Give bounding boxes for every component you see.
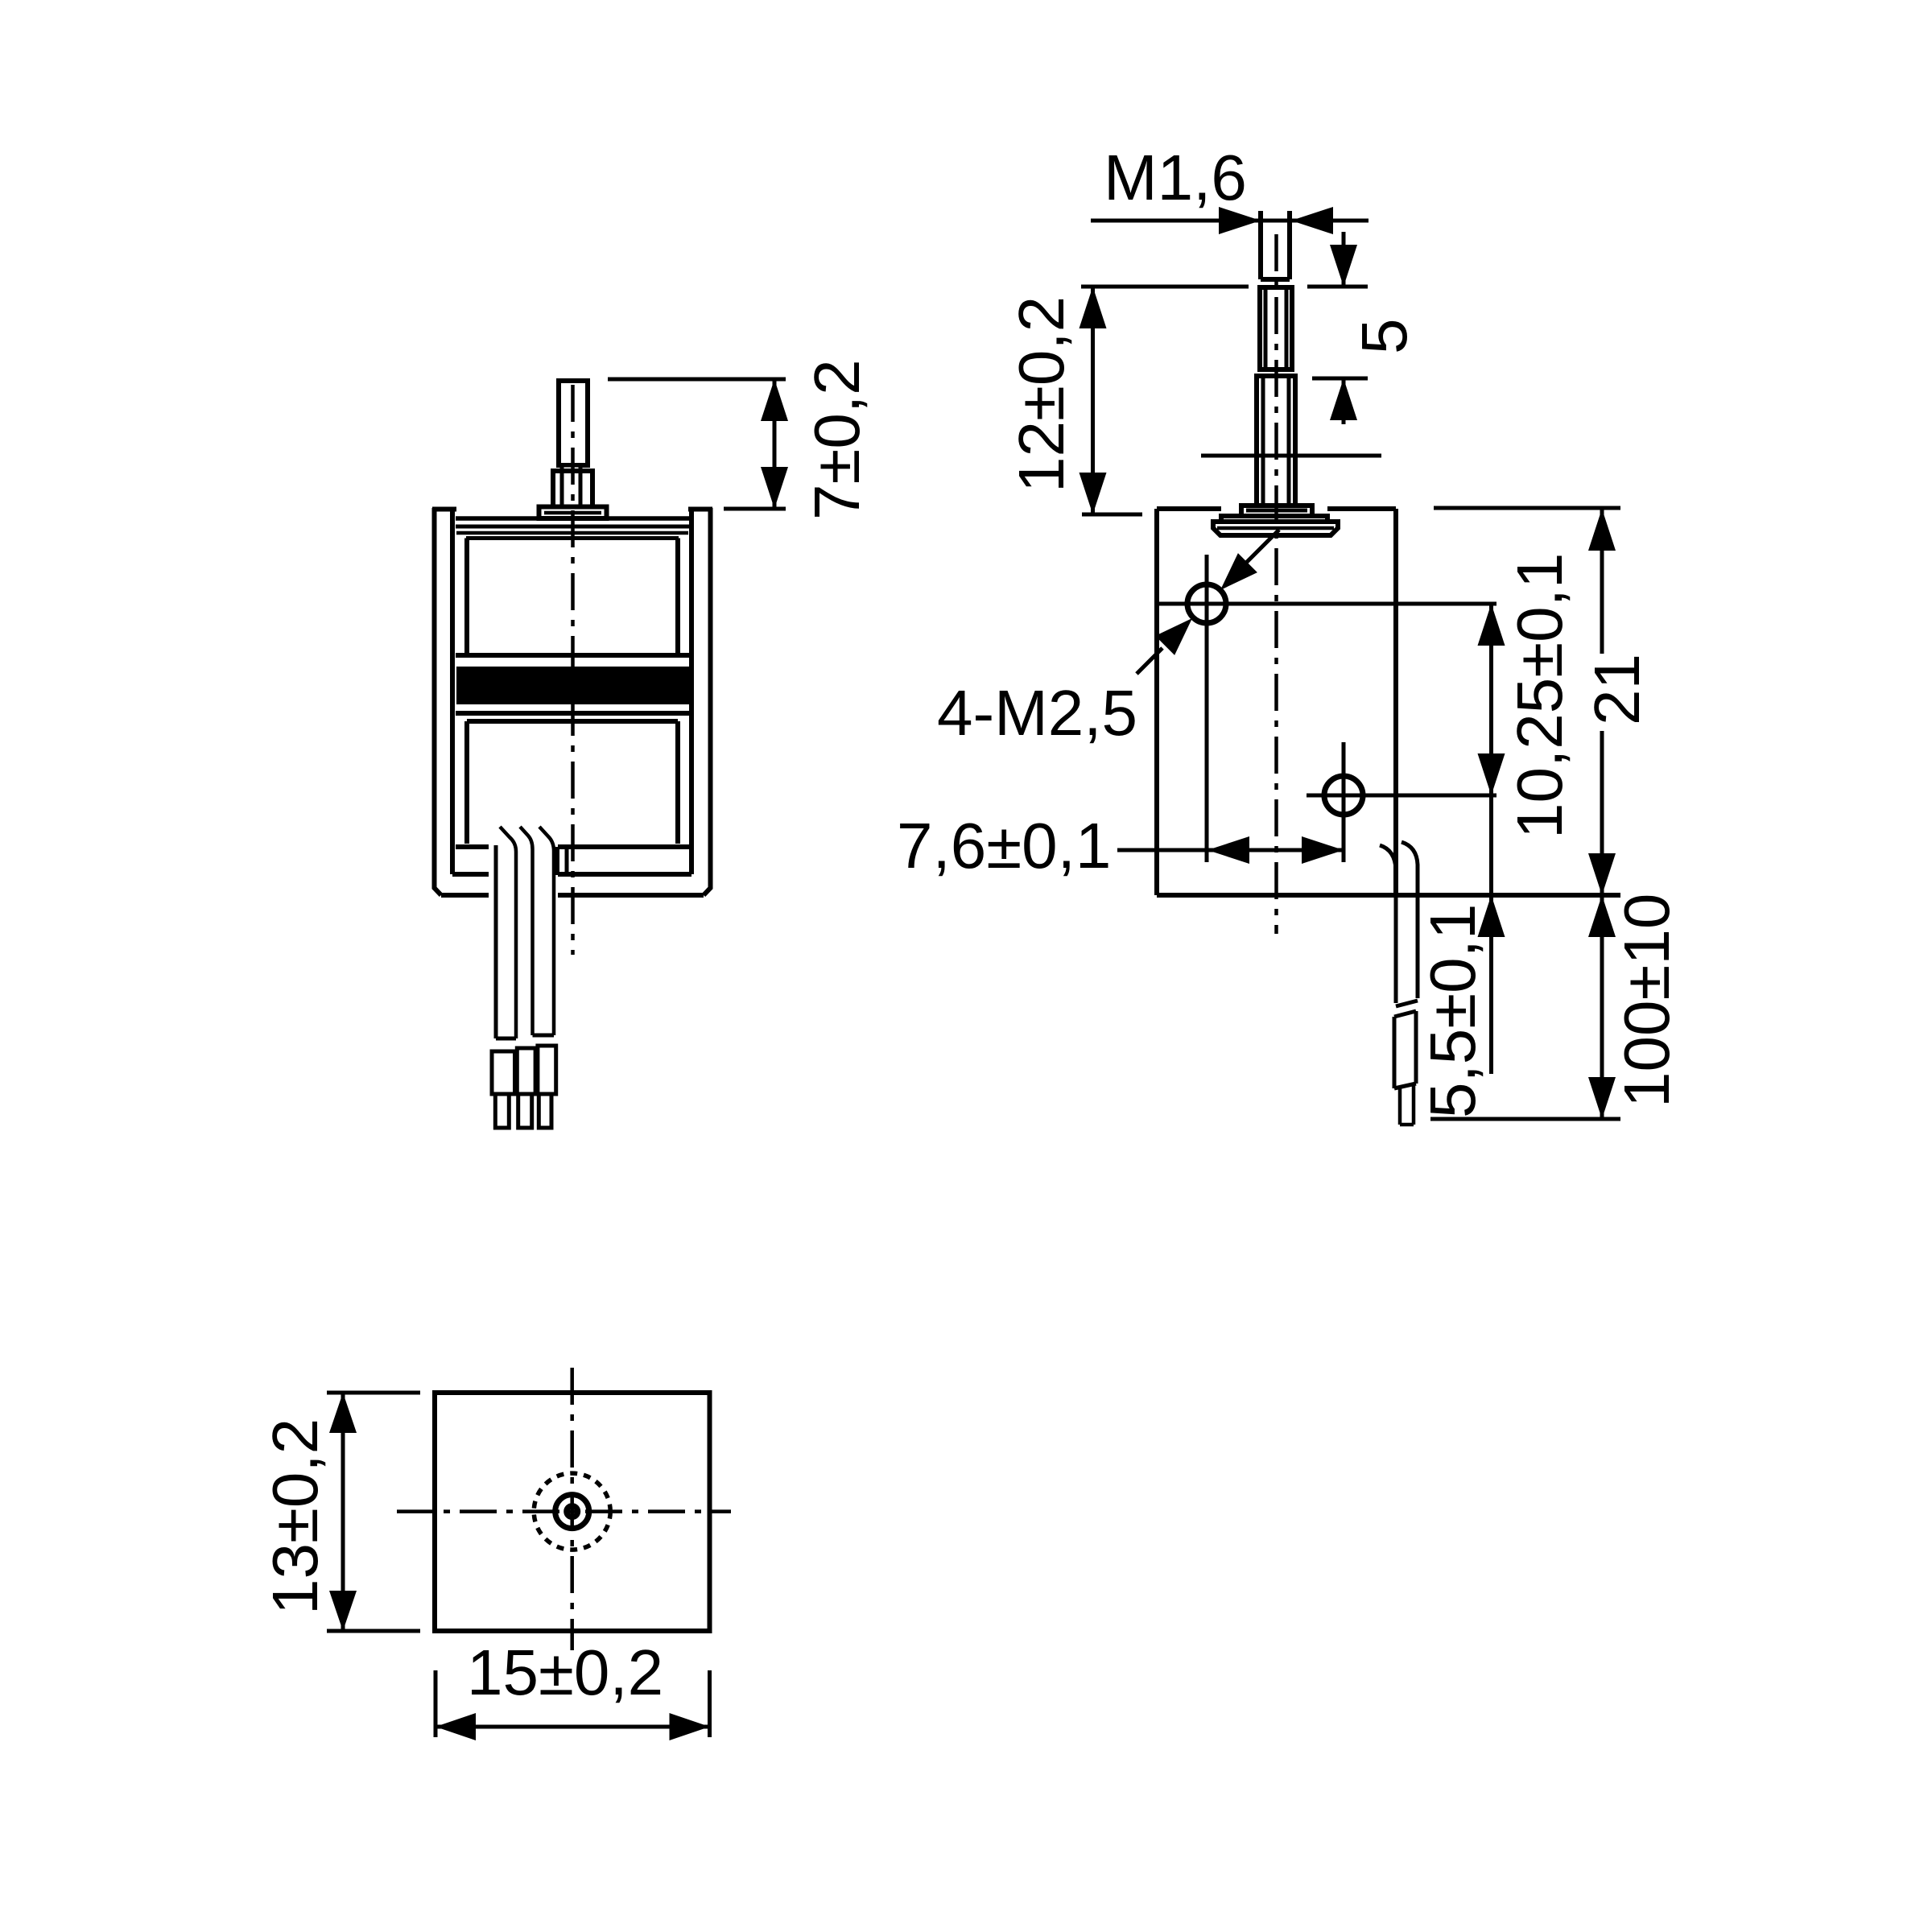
svg-text:7±0,2: 7±0,2	[801, 359, 873, 520]
svg-text:13±0,2: 13±0,2	[259, 1418, 331, 1615]
svg-text:15±0,2: 15±0,2	[467, 1637, 663, 1708]
svg-text:7,6±0,1: 7,6±0,1	[897, 810, 1111, 881]
svg-text:5: 5	[1348, 319, 1420, 355]
svg-text:100±10: 100±10	[1611, 894, 1682, 1108]
svg-text:M1,6: M1,6	[1104, 142, 1247, 213]
svg-text:4-M2,5: 4-M2,5	[937, 677, 1137, 749]
svg-text:12±0,2: 12±0,2	[1005, 296, 1077, 493]
svg-text:5,5±0,1: 5,5±0,1	[1417, 904, 1488, 1118]
svg-text:21: 21	[1581, 654, 1653, 725]
svg-text:10,25±0,1: 10,25±0,1	[1504, 553, 1575, 839]
